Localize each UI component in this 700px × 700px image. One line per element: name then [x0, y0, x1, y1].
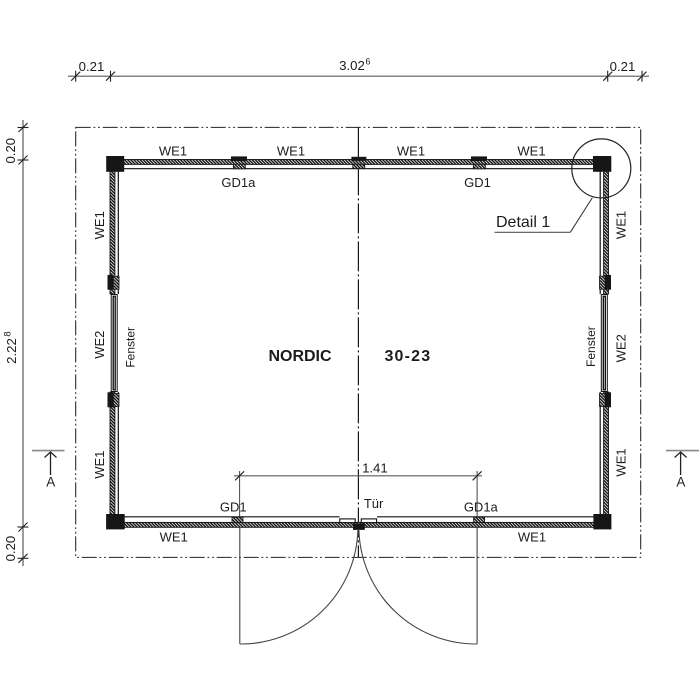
svg-text:3.02: 3.02 [339, 58, 365, 73]
svg-text:WE2: WE2 [92, 331, 107, 359]
svg-text:0.20: 0.20 [3, 138, 18, 164]
svg-text:1.41: 1.41 [362, 460, 388, 475]
svg-text:GD1: GD1 [220, 500, 247, 515]
svg-text:A: A [676, 475, 685, 490]
svg-text:WE1: WE1 [614, 211, 629, 239]
svg-text:0.21: 0.21 [610, 59, 636, 74]
svg-text:Fenster: Fenster [123, 327, 137, 368]
svg-text:WE1: WE1 [92, 211, 107, 239]
svg-text:A: A [46, 475, 55, 490]
svg-text:30-23: 30-23 [384, 348, 431, 365]
svg-text:NORDIC: NORDIC [268, 348, 332, 365]
svg-text:0.21: 0.21 [79, 59, 105, 74]
svg-text:8: 8 [3, 331, 14, 336]
svg-text:GD1: GD1 [464, 175, 491, 190]
svg-text:WE1: WE1 [159, 143, 187, 158]
svg-text:WE1: WE1 [518, 529, 546, 544]
svg-text:WE1: WE1 [517, 143, 545, 158]
svg-text:WE1: WE1 [277, 143, 305, 158]
svg-text:Fenster: Fenster [584, 326, 598, 367]
svg-text:6: 6 [366, 56, 371, 66]
svg-text:WE1: WE1 [92, 451, 107, 479]
svg-text:WE1: WE1 [614, 448, 629, 476]
svg-text:Detail 1: Detail 1 [496, 214, 550, 231]
svg-text:WE1: WE1 [160, 529, 188, 544]
svg-text:0.20: 0.20 [3, 536, 18, 562]
svg-text:2.22: 2.22 [4, 338, 19, 364]
svg-text:GD1a: GD1a [464, 500, 499, 515]
svg-text:Tür: Tür [364, 496, 384, 511]
svg-text:WE1: WE1 [397, 143, 425, 158]
svg-text:WE2: WE2 [614, 334, 629, 362]
svg-text:GD1a: GD1a [221, 175, 256, 190]
